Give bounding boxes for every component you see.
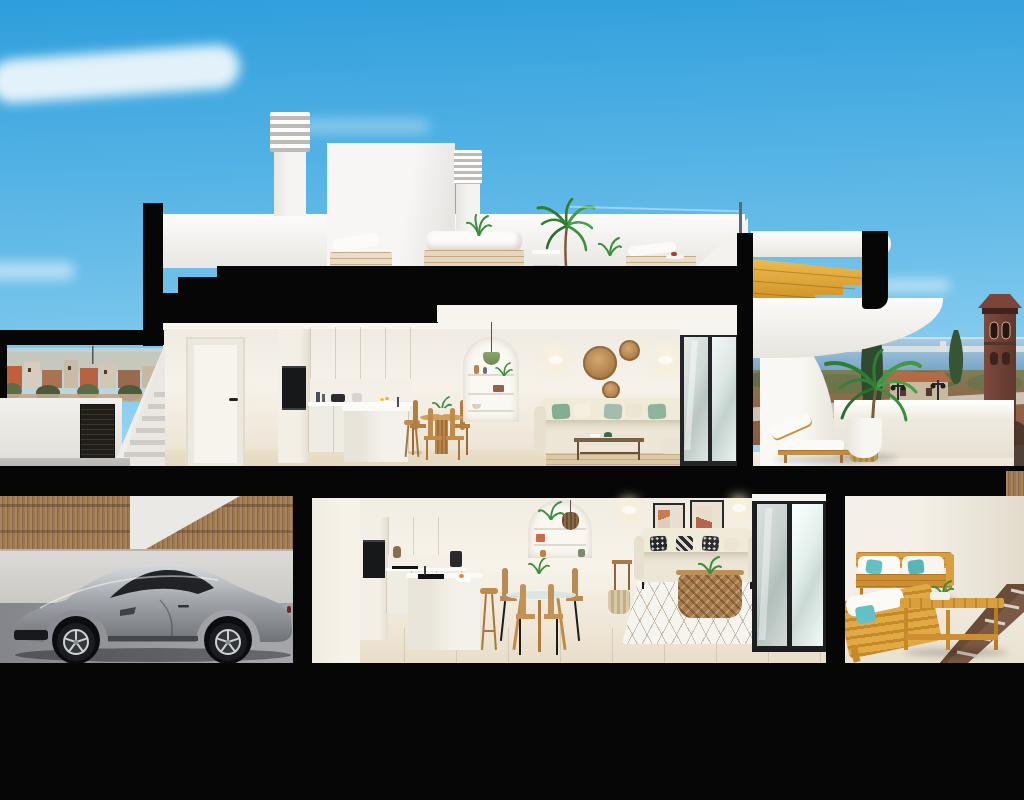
side-table-leg	[628, 564, 630, 590]
chair-leg-black	[556, 619, 558, 655]
upper-kitchen-cabinets	[310, 327, 412, 379]
roof-sofa-base	[424, 250, 524, 267]
lower-oven-column	[360, 517, 388, 640]
section-column-left	[143, 203, 163, 346]
table-deco	[590, 434, 600, 437]
interfloor-slab	[0, 466, 1024, 498]
bottle	[322, 394, 325, 402]
fruit-bowl	[378, 401, 394, 405]
patio-planter-box	[930, 592, 950, 600]
island-sink	[418, 574, 444, 579]
coffee-table-leg	[577, 442, 579, 460]
pillow-beige	[724, 538, 739, 551]
table-deco-plant	[604, 432, 612, 437]
roof-lounge-chair-base	[330, 252, 392, 267]
door-handle	[229, 398, 238, 401]
roof-potted-plant	[598, 236, 622, 256]
table-plant	[528, 556, 550, 574]
patio-divider-wall	[826, 494, 845, 665]
pillow-beige	[626, 404, 642, 418]
wall-sconce	[658, 356, 673, 364]
art-frame-abstract	[696, 506, 712, 530]
dining-chair-front	[520, 584, 526, 618]
patio-table-leg	[904, 608, 908, 650]
niche-books	[493, 385, 504, 392]
chimney-louver-cap	[454, 150, 482, 184]
pillow-green	[648, 404, 667, 420]
patio-fence-sliver	[1006, 471, 1024, 497]
garage-divider-wall	[293, 496, 312, 665]
roof-slab-step	[178, 277, 218, 294]
kettle	[352, 393, 362, 402]
pillow-patterned	[701, 535, 719, 551]
niche-vase	[474, 365, 479, 374]
double-oven	[282, 366, 306, 410]
left-court-slab	[0, 330, 164, 345]
dining-chair-leg	[466, 428, 468, 455]
interior-door	[186, 337, 245, 471]
sliding-door-blind-box	[680, 327, 740, 335]
rattan-wall-disc	[602, 381, 620, 399]
cloud	[300, 118, 430, 134]
fruit	[459, 574, 464, 578]
pillow-patterned-diamond	[676, 536, 693, 551]
wall-sconce	[622, 506, 636, 514]
stair-black-column	[862, 231, 888, 309]
chair-leg-black	[519, 619, 521, 655]
sliding-door-glass	[712, 337, 736, 461]
basket-table-plant	[698, 556, 722, 574]
pendant-cord	[491, 320, 492, 354]
dining-chair-front-seat	[544, 614, 563, 619]
island-faucet	[397, 397, 399, 407]
niche-shelf	[468, 410, 514, 412]
pillow-patterned	[649, 535, 667, 551]
chimney-louver-cap	[270, 112, 310, 152]
coffee-machine	[450, 551, 462, 567]
niche-vase	[483, 367, 487, 374]
coffee-table-leg	[638, 442, 640, 460]
niche-plant-draping	[538, 500, 564, 520]
silver-sports-car	[8, 548, 298, 663]
table-leg-wood	[538, 600, 541, 652]
sofa-arm	[534, 406, 546, 452]
rattan-pendant-cord	[570, 500, 571, 512]
sofa-leg-black	[642, 582, 644, 589]
upper-right-divider-column	[737, 233, 753, 491]
roof-slab-upper	[217, 266, 753, 294]
dining-chair-front	[548, 584, 554, 618]
table-vase	[438, 408, 445, 415]
ground-slab	[0, 663, 1024, 800]
lower-island	[408, 578, 480, 650]
lower-oven	[363, 540, 385, 578]
niche-shelf	[468, 393, 514, 395]
fruit	[385, 397, 389, 400]
sliding-door-blind-box	[752, 494, 828, 501]
induction-hob	[392, 566, 418, 569]
glass-round-table	[506, 590, 576, 600]
chimney-shaft	[274, 148, 306, 216]
niche-pot	[540, 550, 546, 557]
roof-tray-red-accent	[671, 252, 677, 256]
pillow-beige	[574, 404, 590, 418]
patio-table-shadow	[904, 648, 1008, 657]
owl-decor	[393, 546, 401, 558]
woven-basket	[608, 590, 630, 614]
patio-table-leg	[994, 608, 998, 650]
dining-chair-front-leg	[426, 440, 428, 460]
niche-pot	[578, 549, 585, 557]
patio-table-leg	[946, 610, 950, 650]
bar-stool	[480, 588, 498, 594]
bottle	[316, 392, 320, 402]
roof-planter-plant	[466, 214, 492, 236]
niche-shelf	[534, 544, 586, 546]
architectural-cross-section-render	[0, 0, 1024, 800]
palm-pot	[846, 418, 882, 458]
fruit	[380, 398, 384, 401]
pillow-teal	[855, 604, 877, 624]
sofa-arm	[634, 536, 644, 580]
pillow-teal	[907, 559, 924, 575]
niche-shelf	[534, 528, 586, 530]
wall-sconce	[548, 356, 563, 364]
fruit-bowl	[456, 578, 471, 582]
exterior-stairs	[110, 344, 165, 473]
ceiling-soffit-white	[437, 305, 745, 322]
wicker-basket-table	[678, 572, 742, 618]
wall-sconce	[732, 504, 746, 512]
pillow-teal	[865, 559, 883, 575]
niche-plant	[495, 362, 513, 376]
coffee-table-shelf	[580, 452, 638, 454]
kitchen-island	[344, 411, 408, 462]
patio-coffee-table-top	[900, 598, 1004, 608]
roof-slab-main-left	[158, 293, 438, 323]
cooking-pot	[331, 394, 345, 402]
side-table-leg	[614, 564, 616, 590]
dining-chair-front-leg	[458, 440, 460, 460]
pillow-sage	[604, 404, 623, 420]
bar-stool-rung	[483, 630, 495, 632]
roof-palm-plant	[536, 198, 596, 268]
sliding-door-glass	[792, 504, 823, 646]
coffee-table-top	[574, 438, 644, 442]
island-faucet	[424, 566, 426, 575]
dining-chair-front-seat	[446, 436, 464, 440]
niche-books	[536, 534, 545, 542]
cloud	[0, 43, 241, 104]
lounger-leg	[784, 455, 787, 463]
cloud	[0, 262, 75, 280]
patio-table-shelf	[906, 634, 998, 640]
rattan-wall-disc	[583, 346, 617, 380]
dining-chair-leg	[412, 428, 414, 455]
rattan-pendant-lamp	[562, 512, 579, 530]
rattan-wall-disc	[619, 340, 640, 361]
pillow-green	[551, 403, 570, 419]
